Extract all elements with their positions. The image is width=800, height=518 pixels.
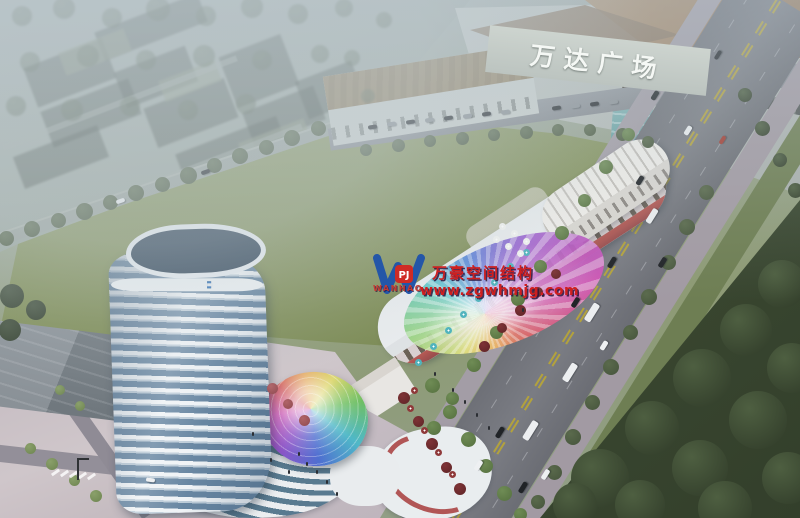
tree xyxy=(514,508,527,518)
tree xyxy=(232,148,248,164)
tree xyxy=(0,319,21,341)
car xyxy=(599,339,609,350)
car xyxy=(650,89,660,100)
umbrella xyxy=(517,250,524,257)
tree xyxy=(625,401,679,455)
hazy-tree xyxy=(12,6,32,26)
car xyxy=(200,169,210,176)
hazy-tree xyxy=(102,8,122,28)
hazy-tree xyxy=(288,4,308,24)
person xyxy=(270,458,272,462)
umbrella xyxy=(523,238,530,245)
umbrella xyxy=(407,405,414,412)
tree xyxy=(424,135,436,147)
bus xyxy=(521,419,538,441)
tree xyxy=(90,490,102,502)
tree xyxy=(534,260,547,273)
car xyxy=(518,481,529,494)
car xyxy=(500,109,509,114)
tree xyxy=(426,438,438,450)
tree xyxy=(55,385,65,395)
street-light xyxy=(77,458,79,480)
car xyxy=(607,256,618,269)
hazy-tree xyxy=(53,0,75,19)
car xyxy=(424,117,433,122)
tree xyxy=(443,405,457,419)
tree xyxy=(427,421,441,435)
tree xyxy=(283,399,293,409)
umbrella xyxy=(445,327,452,334)
car xyxy=(145,477,154,482)
car xyxy=(481,111,490,116)
hazy-tree xyxy=(193,45,215,67)
tree xyxy=(76,203,93,220)
bus xyxy=(584,302,601,323)
tree xyxy=(762,452,800,504)
umbrella xyxy=(499,223,506,230)
hazy-tree xyxy=(376,12,392,28)
car xyxy=(608,99,617,104)
tree xyxy=(284,130,300,146)
tree xyxy=(46,458,58,470)
umbrella xyxy=(505,243,512,250)
tree xyxy=(26,300,46,320)
aerial-rendering: 万达广场 PJ WANHAO 万豪空间结构 www.zgwhmjg.com xyxy=(0,0,800,518)
tree xyxy=(578,194,591,207)
car xyxy=(540,468,550,480)
umbrella xyxy=(421,427,428,434)
watermark-line2: www.zgwhmjg.com xyxy=(420,283,579,299)
hazy-tree xyxy=(6,96,26,116)
person xyxy=(434,372,436,376)
tree xyxy=(642,136,654,148)
tree xyxy=(565,429,581,445)
car xyxy=(718,135,726,145)
car xyxy=(495,426,506,439)
tree xyxy=(454,483,466,495)
person xyxy=(298,452,300,456)
hazy-tree xyxy=(146,0,170,21)
watermark-line1: 万豪空间结构 xyxy=(432,262,534,283)
hazy-tree xyxy=(344,50,360,66)
tree xyxy=(180,167,197,184)
watermark-logo-badge-text: PJ xyxy=(398,270,409,281)
hazy-tree xyxy=(252,50,272,70)
hazy-tree xyxy=(136,50,156,70)
tree xyxy=(584,124,596,136)
car xyxy=(683,124,693,135)
hazy-tree xyxy=(77,45,99,67)
hazy-tree xyxy=(61,99,83,121)
tree xyxy=(398,392,410,404)
tree xyxy=(24,221,40,237)
person xyxy=(288,470,290,474)
hazy-tree xyxy=(311,45,329,63)
watermark-logo-name: WANHAO xyxy=(368,284,428,293)
person xyxy=(476,413,478,417)
person xyxy=(452,388,454,392)
tree xyxy=(446,392,459,405)
umbrella xyxy=(511,230,518,237)
hazy-tree xyxy=(196,6,216,26)
tree xyxy=(456,132,469,145)
hazy-tree xyxy=(120,96,140,116)
tree xyxy=(413,416,424,427)
tree xyxy=(497,323,507,333)
car xyxy=(714,50,723,61)
tree xyxy=(520,126,533,139)
car xyxy=(462,113,471,118)
tree xyxy=(599,160,613,174)
tree xyxy=(641,289,657,305)
crosswalk-stripe xyxy=(60,470,69,478)
tree xyxy=(720,304,772,356)
umbrella xyxy=(411,387,418,394)
tree xyxy=(497,486,512,501)
tree xyxy=(738,88,752,102)
car xyxy=(443,115,452,120)
crosswalk-stripe xyxy=(87,473,96,481)
tree xyxy=(461,432,476,447)
umbrella xyxy=(430,343,437,350)
car xyxy=(386,121,395,126)
person xyxy=(252,432,254,436)
person xyxy=(336,492,338,496)
tree xyxy=(552,124,564,136)
tree xyxy=(767,343,800,393)
tree xyxy=(311,121,326,136)
tree xyxy=(551,269,561,279)
tree xyxy=(128,185,144,201)
tree xyxy=(259,140,274,155)
person xyxy=(326,480,328,484)
mall-sign-text: 万达广场 xyxy=(528,35,667,85)
tree xyxy=(773,153,787,167)
person xyxy=(522,308,524,312)
hazy-tree xyxy=(178,100,198,120)
tree xyxy=(0,284,24,308)
tree xyxy=(531,495,545,509)
tree xyxy=(758,260,800,308)
tree xyxy=(603,359,619,375)
umbrella xyxy=(415,359,422,366)
umbrella xyxy=(523,249,530,256)
hazy-tree xyxy=(20,52,40,72)
car xyxy=(570,103,579,108)
umbrella xyxy=(460,311,467,318)
hazy-tree xyxy=(361,89,375,103)
car xyxy=(405,119,414,124)
tree xyxy=(51,213,66,228)
tree xyxy=(25,443,36,454)
tree xyxy=(622,128,635,141)
tree xyxy=(623,325,638,340)
crosswalk-stripe xyxy=(78,472,87,480)
tree xyxy=(585,395,600,410)
umbrella xyxy=(435,449,442,456)
tree xyxy=(299,415,310,426)
person xyxy=(306,462,308,466)
umbrella xyxy=(493,236,500,243)
tree xyxy=(75,401,85,411)
car xyxy=(635,174,645,185)
bus xyxy=(645,208,659,225)
car xyxy=(367,124,376,129)
person xyxy=(316,470,318,474)
person xyxy=(464,400,466,404)
tree xyxy=(0,231,14,246)
tree xyxy=(467,358,481,372)
hazy-tree xyxy=(241,0,263,18)
person xyxy=(488,426,490,430)
tree xyxy=(755,121,770,136)
umbrella xyxy=(449,471,456,478)
tree xyxy=(488,129,500,141)
tree xyxy=(555,226,569,240)
tree xyxy=(699,185,714,200)
tree xyxy=(267,383,278,394)
tree xyxy=(479,341,490,352)
tree xyxy=(673,349,731,407)
tree xyxy=(788,183,800,198)
bus xyxy=(562,362,579,383)
tree xyxy=(392,139,405,152)
tree xyxy=(425,378,440,393)
hazy-tree xyxy=(335,0,353,17)
tree xyxy=(360,144,372,156)
tree xyxy=(729,391,787,449)
car xyxy=(551,105,560,110)
tree xyxy=(679,219,695,235)
car xyxy=(589,101,598,106)
hazy-tree xyxy=(236,94,256,114)
tree xyxy=(155,177,170,192)
tree xyxy=(615,480,665,518)
